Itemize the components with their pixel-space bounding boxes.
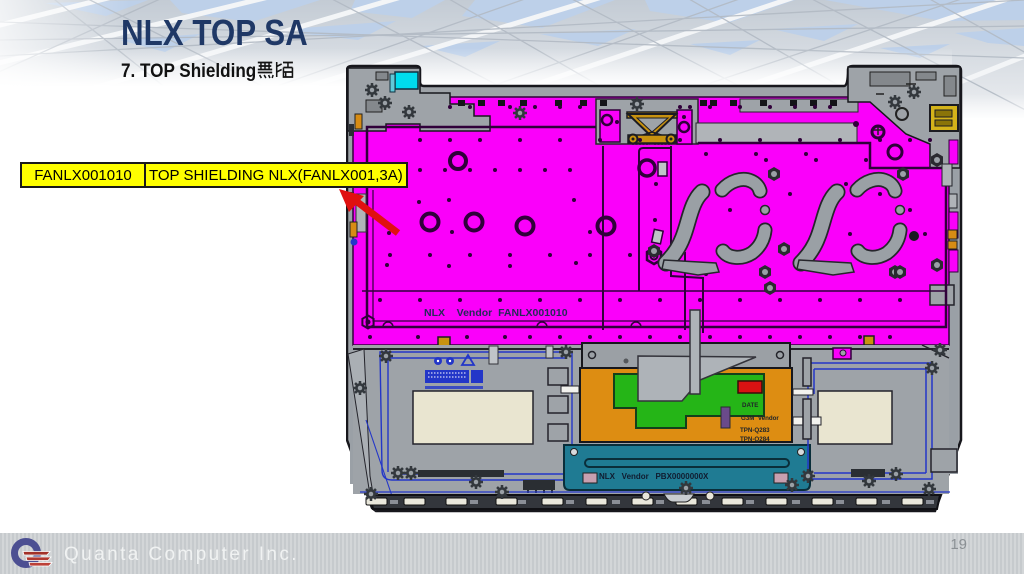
svg-text:NLX Vendor FANLX001010: NLX Vendor FANLX001010 <box>424 307 568 319</box>
svg-text:TPN-Q284: TPN-Q284 <box>740 436 770 443</box>
svg-text:NLX Vendor PBX0000000X: NLX Vendor PBX0000000X <box>599 472 709 481</box>
svg-text:TPN-Q283: TPN-Q283 <box>740 427 770 434</box>
svg-text:G3M Vendor: G3M Vendor <box>741 415 779 422</box>
svg-text:DATE: DATE <box>742 402 758 409</box>
